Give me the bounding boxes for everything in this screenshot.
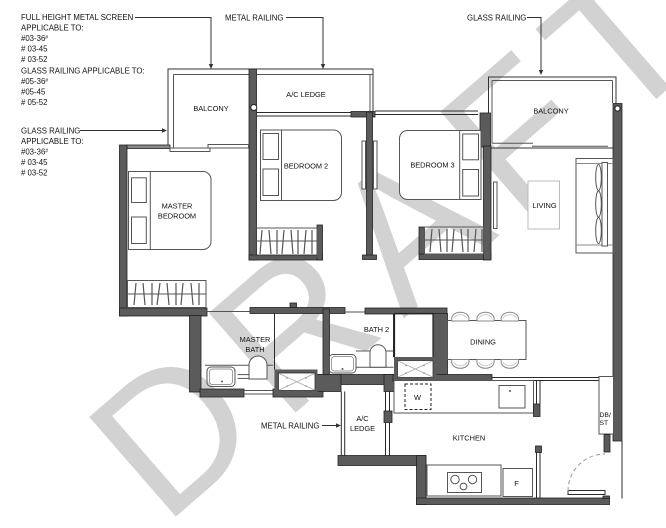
svg-text:MASTER: MASTER <box>240 335 271 344</box>
svg-text:# 03-52: # 03-52 <box>21 169 47 178</box>
svg-text:W: W <box>414 393 421 402</box>
svg-text:BALCONY: BALCONY <box>193 104 228 113</box>
svg-text:BEDROOM 3: BEDROOM 3 <box>410 161 454 170</box>
svg-text:# 05-52: # 05-52 <box>21 98 47 107</box>
svg-text:MASTER: MASTER <box>162 202 193 211</box>
svg-text:BATH 2: BATH 2 <box>364 325 389 334</box>
svg-text:KITCHEN: KITCHEN <box>453 434 485 443</box>
svg-text:APPLICABLE TO:: APPLICABLE TO: <box>21 137 84 146</box>
svg-text:#05-36#: #05-36# <box>21 77 48 86</box>
svg-text:# 03-45: # 03-45 <box>21 45 48 54</box>
svg-text:# 03-52: # 03-52 <box>21 55 47 64</box>
svg-text:GLASS RAILING: GLASS RAILING <box>21 127 80 136</box>
svg-text:BEDROOM: BEDROOM <box>158 212 196 221</box>
svg-text:#03-36#: #03-36# <box>21 148 48 157</box>
svg-text:METAL RAILING: METAL RAILING <box>225 14 284 23</box>
svg-text:DINING: DINING <box>470 338 496 347</box>
svg-text:METAL RAILING: METAL RAILING <box>261 422 320 431</box>
svg-text:GLASS RAILING: GLASS RAILING <box>467 14 526 23</box>
svg-text:BATH: BATH <box>245 345 264 354</box>
svg-text:APPLICABLE TO:: APPLICABLE TO: <box>21 24 84 33</box>
svg-text:BEDROOM 2: BEDROOM 2 <box>284 162 328 171</box>
svg-text:# 03-45: # 03-45 <box>21 158 48 167</box>
svg-text:DB/: DB/ <box>600 412 611 419</box>
svg-text:#05-45: #05-45 <box>21 88 46 97</box>
svg-text:A/C LEDGE: A/C LEDGE <box>286 90 325 99</box>
svg-text:ST: ST <box>600 420 609 427</box>
svg-text:#03-36#: #03-36# <box>21 34 48 43</box>
svg-text:GLASS RAILING APPLICABLE TO:: GLASS RAILING APPLICABLE TO: <box>21 67 145 76</box>
svg-text:LEDGE: LEDGE <box>350 424 375 433</box>
svg-text:F: F <box>514 479 519 488</box>
svg-text:A/C: A/C <box>356 414 369 423</box>
svg-text:FULL HEIGHT METAL SCREEN: FULL HEIGHT METAL SCREEN <box>21 13 133 22</box>
svg-text:LIVING: LIVING <box>532 201 556 210</box>
svg-text:BALCONY: BALCONY <box>533 107 568 116</box>
